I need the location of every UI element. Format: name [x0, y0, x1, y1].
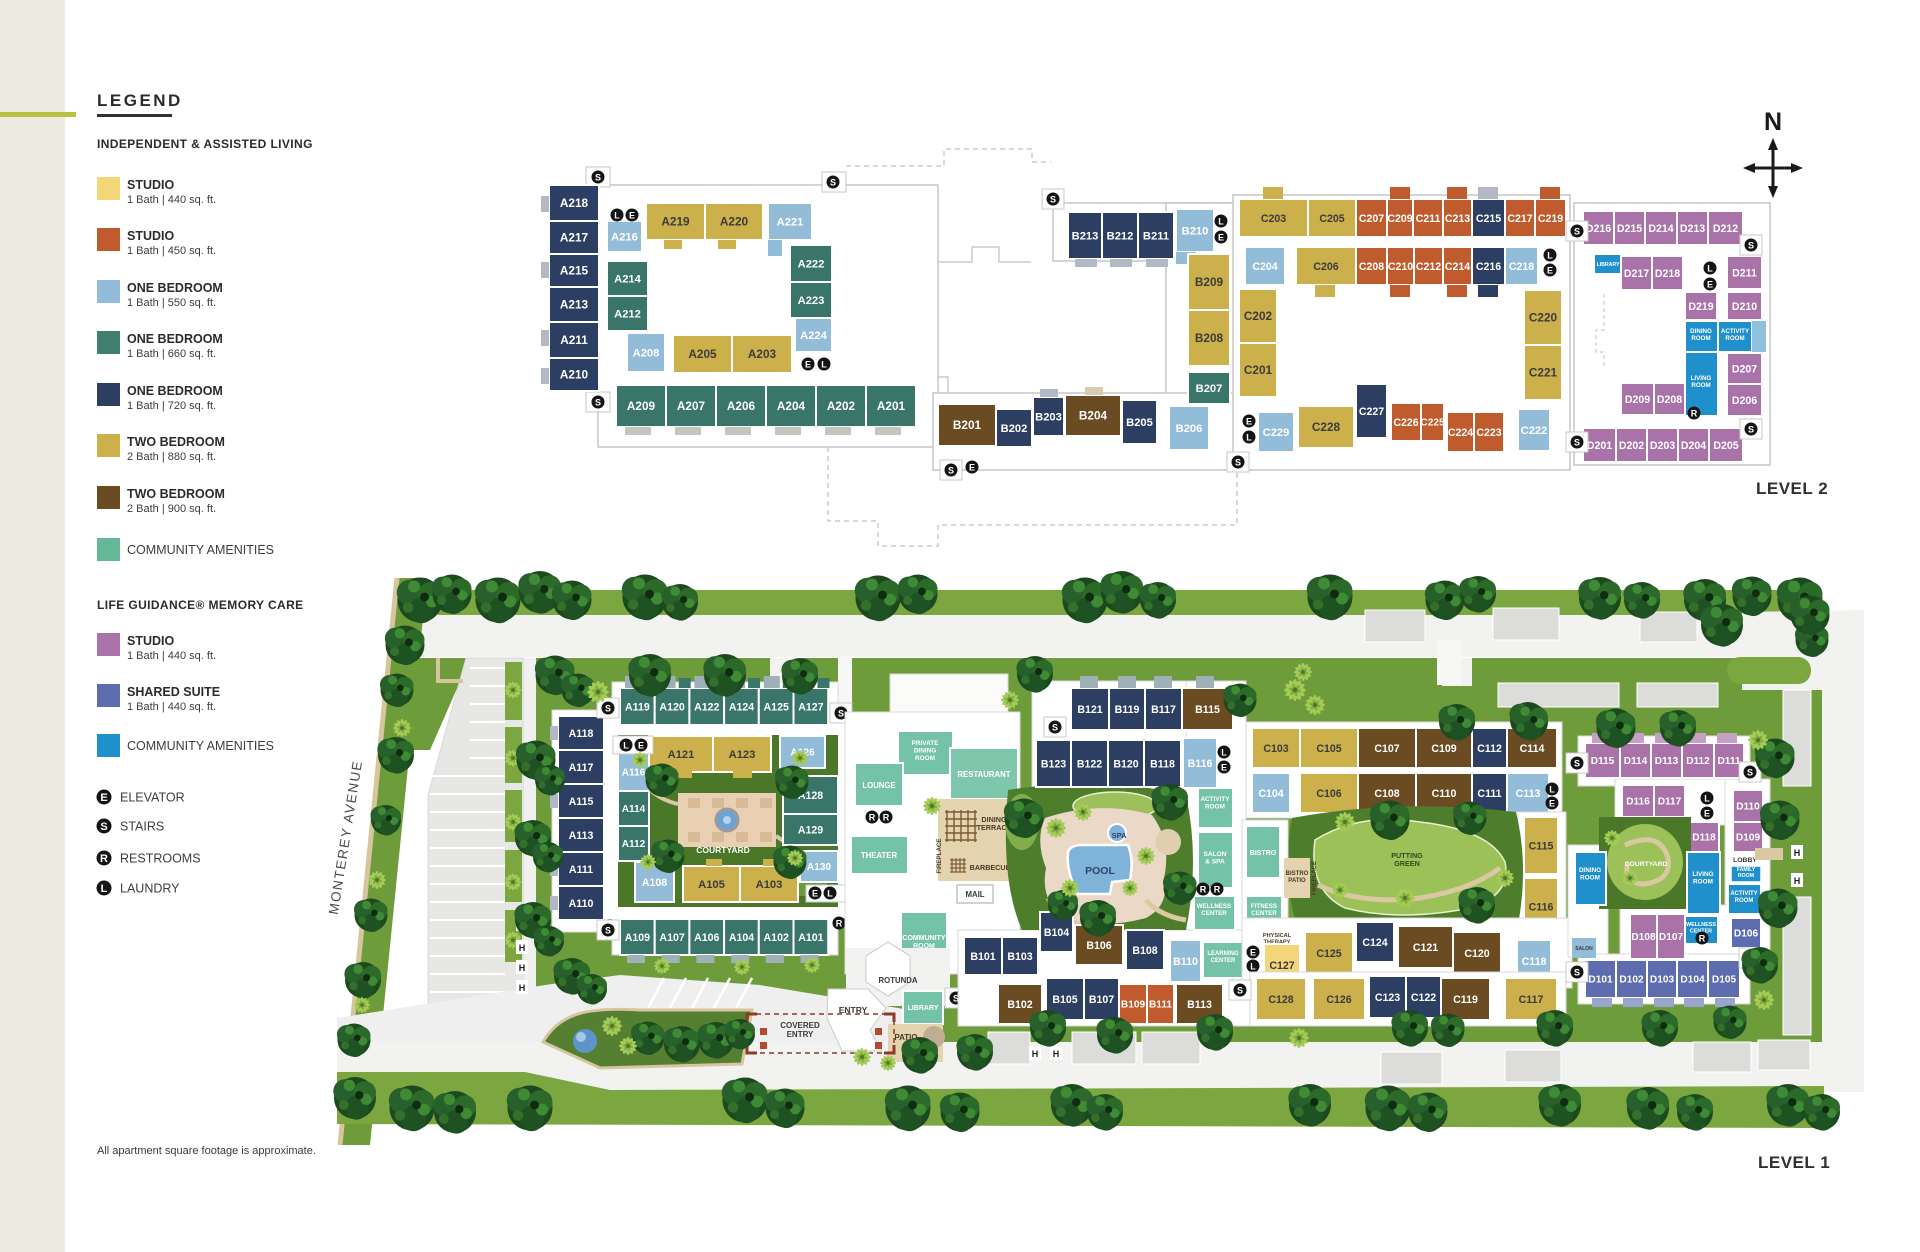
svg-text:H: H [1794, 876, 1801, 886]
svg-text:A202: A202 [827, 399, 856, 413]
svg-text:A215: A215 [560, 264, 589, 278]
svg-text:A112: A112 [622, 839, 646, 850]
svg-text:A104: A104 [729, 932, 754, 944]
svg-text:INDEPENDENT & ASSISTED LIVING: INDEPENDENT & ASSISTED LIVING [97, 137, 313, 151]
svg-text:A214: A214 [614, 274, 642, 286]
svg-text:C209: C209 [1387, 213, 1412, 225]
svg-text:S: S [595, 397, 601, 407]
svg-text:C127: C127 [1269, 960, 1294, 972]
svg-text:B207: B207 [1196, 383, 1223, 395]
svg-text:ROTUNDA: ROTUNDA [879, 976, 918, 985]
svg-text:FAMILYROOM: FAMILYROOM [1737, 867, 1756, 879]
svg-text:R: R [883, 812, 890, 822]
svg-text:A204: A204 [777, 399, 806, 413]
svg-text:ONE BEDROOM: ONE BEDROOM [127, 281, 223, 295]
svg-text:A207: A207 [677, 399, 706, 413]
svg-text:STUDIO: STUDIO [127, 229, 175, 243]
svg-text:B101: B101 [970, 951, 995, 963]
svg-text:E: E [1549, 798, 1555, 808]
svg-text:A106: A106 [694, 932, 719, 944]
svg-text:B204: B204 [1079, 409, 1108, 423]
svg-text:1 Bath | 550 sq. ft.: 1 Bath | 550 sq. ft. [127, 297, 216, 309]
svg-text:D115: D115 [1591, 756, 1615, 767]
svg-text:D207: D207 [1732, 363, 1757, 375]
svg-text:C210: C210 [1388, 261, 1413, 273]
svg-text:A115: A115 [569, 796, 594, 808]
svg-text:COURTYARD: COURTYARD [696, 845, 750, 855]
svg-text:B123: B123 [1041, 758, 1066, 770]
svg-text:LIFE GUIDANCE® MEMORY CARE: LIFE GUIDANCE® MEMORY CARE [97, 598, 304, 612]
svg-text:LIVINGROOM: LIVINGROOM [1691, 375, 1712, 389]
svg-text:S: S [100, 821, 107, 833]
svg-text:C217: C217 [1507, 213, 1532, 225]
svg-text:C215: C215 [1476, 213, 1501, 225]
svg-text:B203: B203 [1035, 412, 1062, 424]
svg-text:S: S [1235, 457, 1241, 467]
svg-text:A216: A216 [611, 232, 638, 244]
svg-text:B201: B201 [953, 418, 982, 432]
svg-text:C116: C116 [1529, 901, 1554, 913]
svg-text:C117: C117 [1519, 994, 1544, 1006]
svg-text:B206: B206 [1176, 423, 1203, 435]
svg-text:DININGROOM: DININGROOM [1579, 867, 1601, 881]
svg-text:B106: B106 [1086, 940, 1111, 952]
svg-text:H: H [519, 943, 526, 953]
svg-text:FIREPLACE: FIREPLACE [936, 838, 943, 873]
svg-text:A208: A208 [633, 348, 660, 360]
svg-text:B102: B102 [1007, 999, 1032, 1011]
svg-text:L: L [623, 740, 629, 750]
svg-text:S: S [1237, 985, 1243, 995]
svg-text:ONE BEDROOM: ONE BEDROOM [127, 384, 223, 398]
svg-text:S: S [1050, 194, 1056, 204]
svg-text:C206: C206 [1313, 261, 1338, 273]
svg-text:D219: D219 [1688, 301, 1713, 313]
svg-text:D118: D118 [1692, 833, 1716, 844]
svg-text:E: E [1547, 265, 1553, 275]
svg-text:C107: C107 [1374, 743, 1399, 755]
svg-text:LAUNDRY: LAUNDRY [120, 882, 180, 896]
svg-text:B119: B119 [1115, 704, 1140, 716]
svg-text:COMMUNITY AMENITIES: COMMUNITY AMENITIES [127, 739, 274, 753]
svg-text:LEVEL 2: LEVEL 2 [1756, 479, 1828, 498]
svg-text:N: N [1764, 108, 1782, 136]
svg-text:D201: D201 [1587, 440, 1612, 452]
svg-text:B211: B211 [1143, 231, 1169, 243]
svg-text:A127: A127 [798, 701, 823, 713]
svg-text:1 Bath | 660 sq. ft.: 1 Bath | 660 sq. ft. [127, 348, 216, 360]
svg-text:D214: D214 [1648, 223, 1673, 235]
svg-text:C227: C227 [1359, 406, 1384, 418]
svg-text:L: L [1218, 216, 1224, 226]
svg-text:A213: A213 [560, 298, 589, 312]
svg-text:E: E [1246, 416, 1252, 426]
svg-text:L: L [827, 888, 833, 898]
svg-text:A218: A218 [560, 196, 589, 210]
svg-text:E: E [1704, 808, 1710, 818]
svg-text:C121: C121 [1413, 942, 1438, 954]
svg-text:E: E [629, 210, 635, 220]
svg-text:C118: C118 [1522, 956, 1547, 968]
svg-text:A114: A114 [622, 804, 646, 815]
svg-text:D114: D114 [1624, 756, 1648, 767]
svg-text:A103: A103 [756, 879, 783, 891]
svg-text:B209: B209 [1195, 275, 1224, 289]
svg-text:D209: D209 [1625, 394, 1650, 406]
svg-text:D105: D105 [1712, 975, 1737, 986]
svg-text:R: R [100, 853, 108, 865]
svg-text:BISTRO: BISTRO [1250, 850, 1277, 857]
svg-text:A108: A108 [642, 877, 667, 889]
svg-text:A219: A219 [661, 215, 690, 229]
svg-text:A130: A130 [807, 862, 832, 873]
svg-text:C201: C201 [1244, 363, 1273, 377]
svg-text:A102: A102 [764, 932, 789, 944]
svg-text:A223: A223 [798, 295, 825, 307]
svg-text:B202: B202 [1001, 423, 1028, 435]
svg-text:C111: C111 [1477, 788, 1501, 800]
svg-text:C212: C212 [1416, 261, 1441, 273]
svg-text:C125: C125 [1316, 948, 1341, 960]
svg-text:ELEVATOR: ELEVATOR [120, 791, 185, 805]
svg-text:L: L [1221, 747, 1227, 757]
svg-text:D106: D106 [1734, 929, 1759, 940]
svg-text:SALON& SPA: SALON& SPA [1203, 851, 1226, 866]
svg-text:R: R [1699, 933, 1706, 943]
svg-text:S: S [1574, 758, 1580, 768]
svg-text:B213: B213 [1072, 231, 1099, 243]
svg-text:A209: A209 [627, 399, 656, 413]
svg-text:D203: D203 [1650, 440, 1675, 452]
svg-text:A222: A222 [798, 259, 825, 271]
svg-text:STAIRS: STAIRS [120, 820, 164, 834]
svg-text:C115: C115 [1529, 840, 1554, 852]
svg-text:C228: C228 [1312, 420, 1341, 434]
svg-text:C222: C222 [1521, 425, 1548, 437]
svg-text:H: H [1794, 848, 1801, 858]
svg-text:A212: A212 [614, 309, 641, 321]
svg-text:LEGEND: LEGEND [97, 91, 183, 110]
svg-text:C123: C123 [1375, 992, 1400, 1004]
svg-text:C106: C106 [1316, 788, 1341, 800]
svg-text:LEVEL 1: LEVEL 1 [1758, 1153, 1830, 1172]
svg-text:S: S [1574, 226, 1580, 236]
svg-text:D117: D117 [1658, 797, 1682, 808]
svg-text:D218: D218 [1655, 268, 1680, 280]
svg-text:C211: C211 [1416, 213, 1441, 225]
svg-text:FIREPLACE: FIREPLACE [1312, 861, 1318, 895]
svg-text:H: H [519, 983, 526, 993]
svg-text:ONE BEDROOM: ONE BEDROOM [127, 332, 223, 346]
svg-text:L: L [1547, 250, 1553, 260]
svg-text:DININGROOM: DININGROOM [1690, 328, 1712, 342]
svg-text:BARBECUE: BARBECUE [970, 863, 1011, 872]
svg-text:C229: C229 [1263, 427, 1290, 439]
svg-text:B117: B117 [1151, 704, 1176, 716]
svg-text:B115: B115 [1195, 704, 1220, 716]
svg-text:H: H [519, 963, 526, 973]
svg-text:C204: C204 [1252, 261, 1277, 273]
svg-text:R: R [836, 918, 843, 928]
svg-text:D107: D107 [1659, 932, 1684, 943]
svg-text:RESTAURANT: RESTAURANT [957, 770, 1010, 779]
svg-text:A121: A121 [668, 749, 695, 761]
svg-text:B122: B122 [1077, 758, 1102, 770]
svg-text:2 Bath | 900 sq. ft.: 2 Bath | 900 sq. ft. [127, 503, 216, 515]
svg-text:C128: C128 [1268, 994, 1293, 1006]
svg-text:SPA: SPA [1112, 831, 1127, 840]
svg-text:SALON: SALON [1575, 946, 1593, 952]
svg-text:C104: C104 [1258, 788, 1283, 800]
svg-text:C202: C202 [1244, 309, 1273, 323]
svg-text:S: S [1574, 437, 1580, 447]
svg-text:C226: C226 [1393, 417, 1418, 429]
svg-text:C213: C213 [1445, 213, 1470, 225]
svg-text:H: H [1032, 1049, 1039, 1059]
svg-text:A129: A129 [798, 824, 823, 836]
svg-text:All apartment square footage i: All apartment square footage is approxim… [97, 1145, 316, 1157]
svg-text:C208: C208 [1359, 261, 1384, 273]
svg-text:A205: A205 [688, 347, 717, 361]
svg-text:D102: D102 [1619, 975, 1644, 986]
svg-text:C221: C221 [1529, 366, 1558, 380]
svg-text:C224: C224 [1448, 427, 1473, 439]
svg-text:D103: D103 [1650, 975, 1675, 986]
svg-text:C220: C220 [1529, 311, 1558, 325]
svg-text:R: R [1691, 408, 1698, 418]
svg-text:B113: B113 [1187, 999, 1212, 1011]
svg-text:D211: D211 [1732, 267, 1757, 279]
svg-text:C103: C103 [1263, 743, 1288, 755]
svg-text:D112: D112 [1686, 756, 1710, 767]
svg-text:ENTRY: ENTRY [839, 1005, 868, 1015]
svg-text:A124: A124 [729, 701, 754, 713]
svg-text:S: S [595, 172, 601, 182]
svg-text:A203: A203 [748, 347, 777, 361]
svg-text:L: L [101, 883, 108, 895]
svg-text:E: E [1221, 762, 1227, 772]
svg-text:A125: A125 [764, 701, 789, 713]
svg-text:C126: C126 [1326, 994, 1351, 1006]
svg-text:E: E [1707, 279, 1713, 289]
svg-text:C218: C218 [1509, 261, 1534, 273]
svg-text:LOUNGE: LOUNGE [862, 781, 895, 790]
svg-text:PUTTINGGREEN: PUTTINGGREEN [1391, 851, 1423, 868]
svg-text:S: S [605, 925, 611, 935]
svg-text:1 Bath | 440 sq. ft.: 1 Bath | 440 sq. ft. [127, 194, 216, 206]
svg-text:S: S [1748, 240, 1754, 250]
svg-text:C214: C214 [1445, 261, 1470, 273]
svg-text:E: E [812, 888, 818, 898]
svg-text:D110: D110 [1736, 802, 1760, 813]
svg-text:C114: C114 [1520, 743, 1545, 755]
svg-text:WELLNESSCENTER: WELLNESSCENTER [1197, 903, 1231, 917]
svg-text:B116: B116 [1188, 758, 1213, 770]
svg-text:B103: B103 [1007, 951, 1032, 963]
svg-text:D204: D204 [1681, 440, 1706, 452]
svg-text:B210: B210 [1182, 226, 1209, 238]
svg-text:L: L [1250, 961, 1256, 971]
svg-text:A201: A201 [877, 399, 906, 413]
svg-text:C219: C219 [1538, 213, 1563, 225]
svg-text:A220: A220 [720, 215, 749, 229]
svg-text:B110: B110 [1173, 956, 1198, 968]
svg-text:1 Bath | 440 sq. ft.: 1 Bath | 440 sq. ft. [127, 701, 216, 713]
svg-text:S: S [1052, 722, 1058, 732]
svg-text:E: E [638, 740, 644, 750]
svg-text:C207: C207 [1359, 213, 1384, 225]
svg-text:POOL: POOL [1085, 865, 1115, 877]
svg-text:COURTYARD: COURTYARD [1625, 861, 1668, 868]
svg-text:TWO BEDROOM: TWO BEDROOM [127, 435, 225, 449]
svg-text:B212: B212 [1107, 231, 1134, 243]
svg-text:B111: B111 [1149, 1000, 1172, 1011]
svg-text:A109: A109 [625, 932, 650, 944]
svg-text:L: L [1246, 432, 1252, 442]
svg-text:C124: C124 [1362, 937, 1387, 949]
svg-text:C216: C216 [1476, 261, 1501, 273]
svg-text:C223: C223 [1476, 427, 1501, 439]
svg-text:C108: C108 [1374, 788, 1399, 800]
svg-text:A206: A206 [727, 399, 756, 413]
svg-text:B121: B121 [1077, 704, 1102, 716]
svg-text:A118: A118 [569, 728, 594, 740]
svg-text:D113: D113 [1655, 756, 1679, 767]
svg-text:R: R [1200, 884, 1207, 894]
svg-text:FITNESSCENTER: FITNESSCENTER [1251, 903, 1277, 917]
svg-text:B205: B205 [1126, 417, 1153, 429]
svg-text:S: S [1748, 424, 1754, 434]
svg-text:MAIL: MAIL [965, 890, 984, 899]
svg-text:E: E [1250, 947, 1256, 957]
svg-text:B107: B107 [1089, 994, 1114, 1006]
svg-text:B108: B108 [1132, 945, 1157, 957]
svg-text:C122: C122 [1411, 992, 1436, 1004]
svg-text:D210: D210 [1732, 301, 1757, 313]
svg-text:D111: D111 [1717, 756, 1740, 767]
svg-text:RESTROOMS: RESTROOMS [120, 852, 201, 866]
svg-text:1 Bath | 440 sq. ft.: 1 Bath | 440 sq. ft. [127, 650, 216, 662]
svg-text:L: L [1549, 784, 1555, 794]
svg-text:B104: B104 [1044, 927, 1069, 939]
svg-text:D217: D217 [1624, 268, 1649, 280]
svg-text:LOBBY: LOBBY [1733, 857, 1757, 864]
svg-text:A119: A119 [625, 701, 650, 713]
svg-text:S: S [830, 177, 836, 187]
svg-text:COMMUNITY AMENITIES: COMMUNITY AMENITIES [127, 543, 274, 557]
svg-text:2 Bath | 880 sq. ft.: 2 Bath | 880 sq. ft. [127, 451, 216, 463]
svg-text:D202: D202 [1619, 440, 1644, 452]
svg-text:SHARED SUITE: SHARED SUITE [127, 685, 220, 699]
svg-text:D116: D116 [1626, 797, 1650, 808]
svg-text:STUDIO: STUDIO [127, 634, 175, 648]
svg-text:L: L [614, 210, 620, 220]
svg-text:C205: C205 [1319, 213, 1344, 225]
svg-text:A211: A211 [560, 333, 588, 347]
svg-text:B118: B118 [1150, 758, 1175, 770]
svg-text:D215: D215 [1617, 223, 1642, 235]
svg-text:TWO BEDROOM: TWO BEDROOM [127, 487, 225, 501]
svg-text:H: H [1053, 1049, 1060, 1059]
svg-text:B120: B120 [1113, 758, 1138, 770]
svg-text:C112: C112 [1477, 743, 1502, 755]
svg-text:S: S [838, 708, 844, 718]
svg-text:A224: A224 [800, 330, 828, 342]
svg-text:LIVINGROOM: LIVINGROOM [1692, 871, 1713, 885]
svg-text:A122: A122 [694, 701, 719, 713]
svg-text:S: S [1747, 767, 1753, 777]
svg-text:D108: D108 [1631, 932, 1656, 943]
svg-text:A111: A111 [569, 864, 593, 876]
svg-text:E: E [1218, 232, 1224, 242]
svg-text:LIBRARY: LIBRARY [1597, 262, 1620, 268]
svg-text:A120: A120 [659, 701, 684, 713]
svg-text:S: S [605, 703, 611, 713]
svg-text:D212: D212 [1713, 223, 1738, 235]
svg-text:A221: A221 [777, 217, 804, 229]
svg-text:D208: D208 [1657, 394, 1682, 406]
svg-text:A210: A210 [560, 368, 589, 382]
svg-text:THEATER: THEATER [861, 851, 898, 860]
svg-text:D216: D216 [1586, 223, 1611, 235]
svg-text:B105: B105 [1052, 994, 1077, 1006]
svg-text:A101: A101 [798, 932, 823, 944]
svg-text:A113: A113 [569, 830, 594, 842]
svg-text:B208: B208 [1195, 331, 1224, 345]
svg-text:L: L [1707, 263, 1713, 273]
svg-text:D104: D104 [1680, 975, 1705, 986]
svg-text:A105: A105 [698, 879, 725, 891]
svg-text:B109: B109 [1121, 1000, 1146, 1011]
svg-text:D205: D205 [1713, 440, 1738, 452]
svg-text:BISTROPATIO: BISTROPATIO [1286, 871, 1309, 884]
svg-text:D206: D206 [1732, 395, 1757, 407]
svg-text:STUDIO: STUDIO [127, 178, 175, 192]
svg-text:E: E [805, 359, 811, 369]
svg-text:C203: C203 [1261, 213, 1286, 225]
svg-text:L: L [1704, 793, 1710, 803]
svg-text:C120: C120 [1464, 948, 1489, 960]
svg-text:A123: A123 [729, 749, 756, 761]
svg-text:C119: C119 [1453, 994, 1478, 1006]
svg-text:D213: D213 [1680, 223, 1705, 235]
svg-text:L: L [821, 359, 827, 369]
svg-text:LEARNINGCENTER: LEARNINGCENTER [1207, 951, 1239, 964]
svg-text:LIBRARY: LIBRARY [908, 1005, 939, 1012]
svg-text:D101: D101 [1588, 975, 1613, 986]
svg-text:C105: C105 [1316, 743, 1341, 755]
svg-text:S: S [948, 465, 954, 475]
svg-text:C110: C110 [1432, 788, 1457, 800]
svg-text:E: E [100, 792, 107, 804]
svg-text:R: R [869, 812, 876, 822]
svg-text:C109: C109 [1431, 743, 1456, 755]
svg-text:1 Bath | 720 sq. ft.: 1 Bath | 720 sq. ft. [127, 400, 216, 412]
svg-text:R: R [1214, 884, 1221, 894]
svg-text:E: E [969, 462, 975, 472]
svg-text:S: S [1574, 967, 1580, 977]
svg-text:A117: A117 [569, 762, 594, 774]
svg-text:1 Bath | 450 sq. ft.: 1 Bath | 450 sq. ft. [127, 245, 216, 257]
svg-text:C113: C113 [1516, 788, 1541, 800]
svg-text:C225: C225 [1420, 418, 1445, 429]
svg-text:A116: A116 [622, 768, 646, 779]
svg-text:D109: D109 [1736, 833, 1761, 844]
svg-text:A217: A217 [560, 231, 589, 245]
svg-text:A110: A110 [569, 898, 594, 910]
svg-text:A107: A107 [659, 932, 684, 944]
